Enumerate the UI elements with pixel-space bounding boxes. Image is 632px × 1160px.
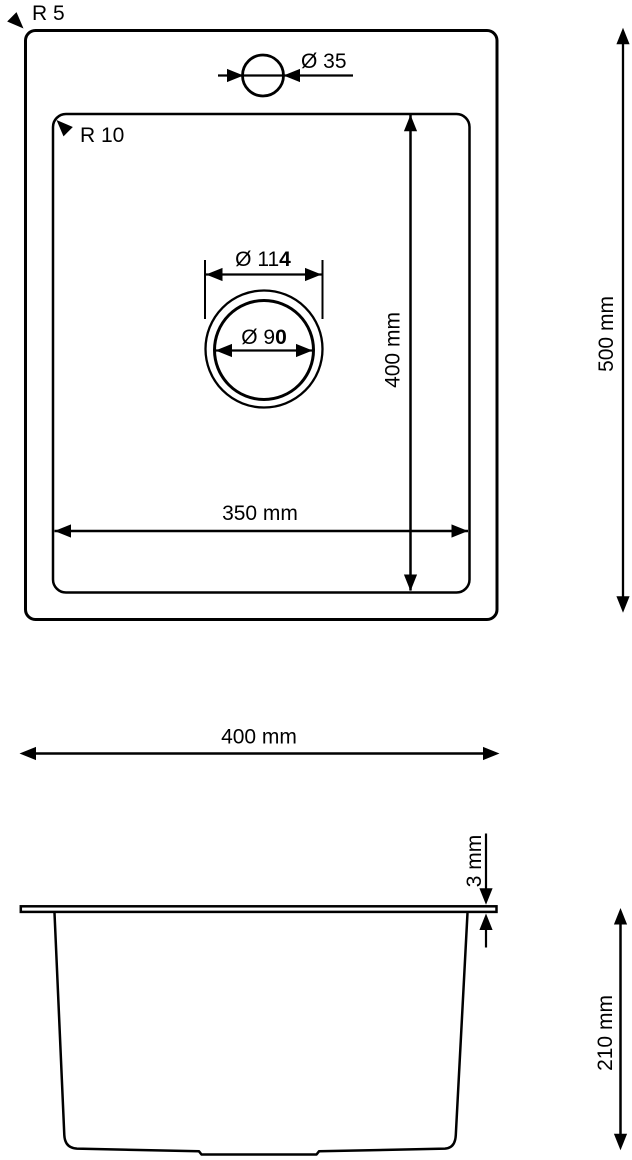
svg-text:Ø 114: Ø 114 — [235, 248, 291, 271]
svg-text:210 mm: 210 mm — [594, 995, 617, 1071]
svg-text:400 mm: 400 mm — [382, 312, 405, 388]
svg-text:500 mm: 500 mm — [595, 296, 618, 372]
svg-text:350 mm: 350 mm — [222, 502, 298, 525]
svg-text:R 5: R 5 — [32, 2, 65, 25]
svg-text:R 10: R 10 — [80, 124, 124, 147]
svg-text:400 mm: 400 mm — [221, 726, 297, 749]
svg-text:Ø 35: Ø 35 — [301, 50, 347, 73]
svg-text:3 mm: 3 mm — [463, 835, 486, 888]
svg-text:Ø 90: Ø 90 — [241, 326, 287, 349]
